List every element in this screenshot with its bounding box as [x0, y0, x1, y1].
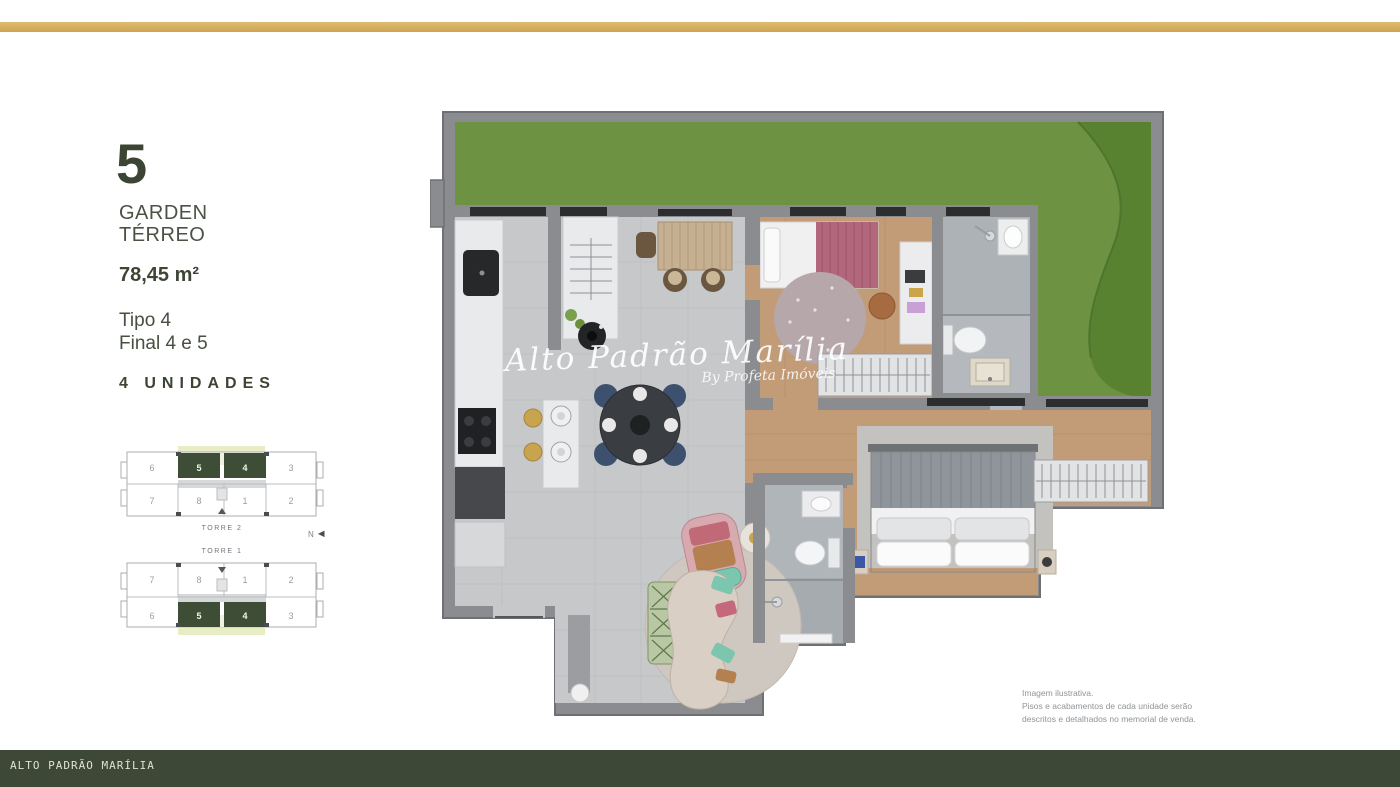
unit-type-line2: TÉRREO: [119, 224, 205, 247]
kp1-unit-3: 3: [288, 611, 293, 621]
disclaimer-line3: descritos e detalhados no memorial de ve…: [1022, 713, 1196, 726]
kp1-unit-5: 5: [196, 611, 201, 621]
keyplan-torre-1: 7 8 1 2 6 5 4 3: [119, 557, 325, 635]
keyplan-torre-2: 6 5 4 3 7 8 1 2: [119, 446, 325, 524]
flyer-page: 5 GARDEN TÉRREO 78,45 m² Tipo 4 Final 4 …: [0, 0, 1400, 787]
unit-tipo: Tipo 4: [119, 310, 171, 332]
kp2-unit-5: 5: [196, 463, 201, 473]
kp1-unit-1: 1: [242, 575, 247, 585]
compass-letter: N: [308, 530, 314, 539]
kp2-unit-8: 8: [196, 496, 201, 506]
floor-plan: [430, 110, 1170, 725]
disclaimer-line2: Pisos e acabamentos de cada unidade serã…: [1022, 700, 1196, 713]
kp1-unit-2: 2: [288, 575, 293, 585]
keyplan-torre-2-label: TORRE 2: [119, 525, 325, 532]
keyplan-torre-2-drawing: 6 5 4 3 7 8 1 2: [119, 446, 325, 524]
unit-number: 5: [116, 136, 147, 192]
floor-plan-drawing: [430, 110, 1170, 725]
disclaimer-line1: Imagem ilustrativa.: [1022, 687, 1196, 700]
round-dining-table: [594, 384, 686, 466]
unit-final: Final 4 e 5: [119, 333, 208, 355]
kp1-unit-4: 4: [242, 611, 247, 621]
kp2-unit-1: 1: [242, 496, 247, 506]
kp1-unit-6: 6: [149, 611, 154, 621]
kp2-unit-4: 4: [242, 463, 247, 473]
keyplan-torre-1-label: TORRE 1: [119, 548, 325, 555]
kp1-unit-7: 7: [149, 575, 154, 585]
compass-arrow-icon: ◄: [316, 528, 327, 540]
gold-accent-bar: [0, 22, 1400, 32]
kp1-unit-8: 8: [196, 575, 201, 585]
kp2-unit-7: 7: [149, 496, 154, 506]
north-compass-icon: N◄: [308, 528, 327, 540]
units-count: 4 UNIDADES: [119, 375, 276, 393]
kp2-unit-6: 6: [149, 463, 154, 473]
kp2-unit-2: 2: [288, 496, 293, 506]
footer-brand-text: ALTO PADRÃO MARÍLIA: [10, 759, 155, 772]
footer-bar: ALTO PADRÃO MARÍLIA: [0, 750, 1400, 787]
disclaimer: Imagem ilustrativa. Pisos e acabamentos …: [1022, 687, 1196, 725]
unit-type-line1: GARDEN: [119, 202, 208, 225]
keyplan-torre-1-drawing: 7 8 1 2 6 5 4 3: [119, 557, 325, 635]
unit-area: 78,45 m²: [119, 264, 199, 287]
kp2-unit-3: 3: [288, 463, 293, 473]
